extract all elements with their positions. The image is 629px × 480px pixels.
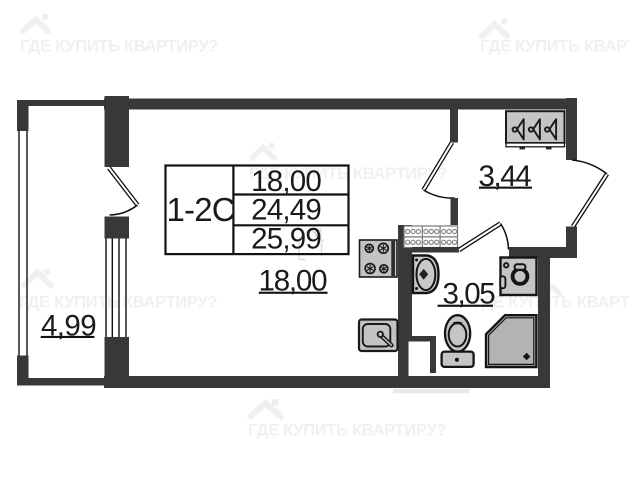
svg-text:ГДЕ КУПИТЬ КВАРТИРУ?: ГДЕ КУПИТЬ КВАРТИРУ? [473,294,629,312]
svg-text:25,99: 25,99 [251,223,321,256]
svg-text:ГДЕ КУПИТЬ КВАРТИРУ?: ГДЕ КУПИТЬ КВАРТИРУ? [480,38,629,56]
svg-text:ГДЕ КУПИТЬ КВАРТИРУ?: ГДЕ КУПИТЬ КВАРТИРУ? [248,422,446,440]
svg-text:ГДЕ КУПИТЬ КВАРТИРУ?: ГДЕ КУПИТЬ КВАРТИРУ? [20,38,218,56]
svg-text:1-2C: 1-2C [167,191,235,228]
